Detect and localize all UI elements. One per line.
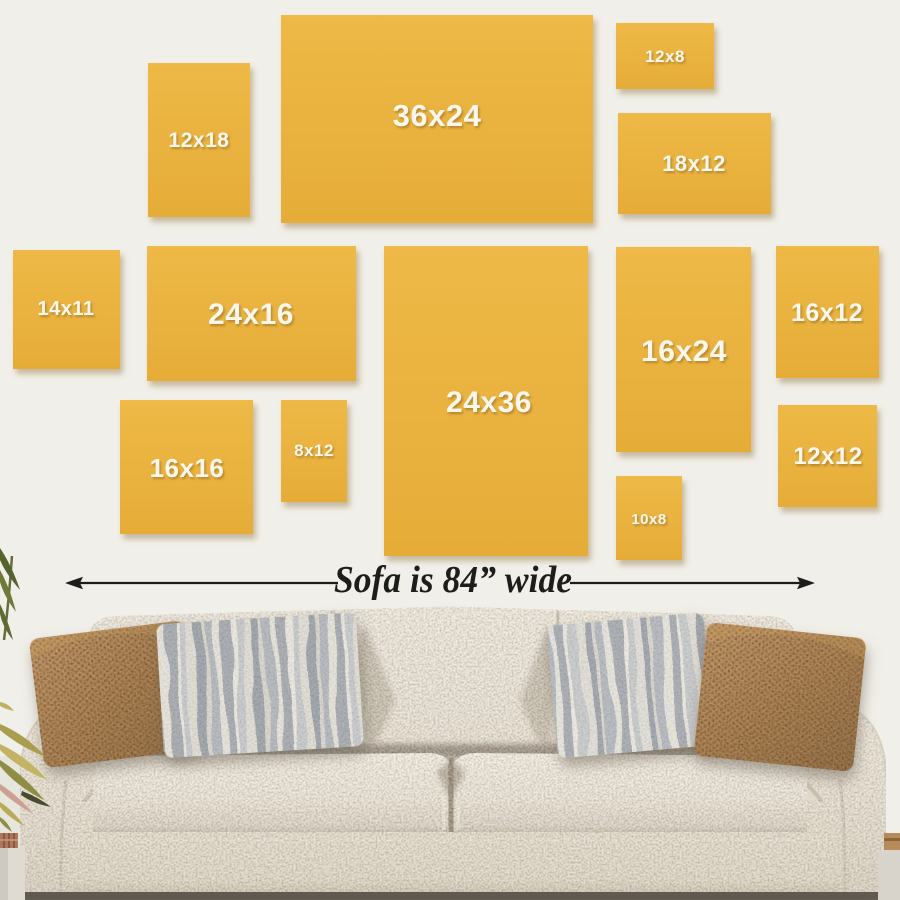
svg-text:14x11: 14x11 (37, 298, 94, 320)
svg-text:24x16: 24x16 (208, 298, 294, 331)
svg-text:12x8: 12x8 (645, 47, 685, 66)
svg-text:18x12: 18x12 (662, 151, 726, 176)
svg-text:10x8: 10x8 (631, 511, 666, 528)
svg-text:36x24: 36x24 (393, 98, 482, 133)
svg-text:16x24: 16x24 (641, 335, 727, 368)
svg-text:12x12: 12x12 (793, 443, 862, 470)
svg-text:16x16: 16x16 (150, 453, 225, 483)
svg-text:Sofa is 84” wide: Sofa is 84” wide (334, 559, 572, 601)
svg-text:8x12: 8x12 (294, 441, 334, 460)
svg-text:12x18: 12x18 (169, 129, 230, 152)
svg-text:24x36: 24x36 (446, 386, 532, 419)
svg-text:16x12: 16x12 (791, 299, 863, 327)
